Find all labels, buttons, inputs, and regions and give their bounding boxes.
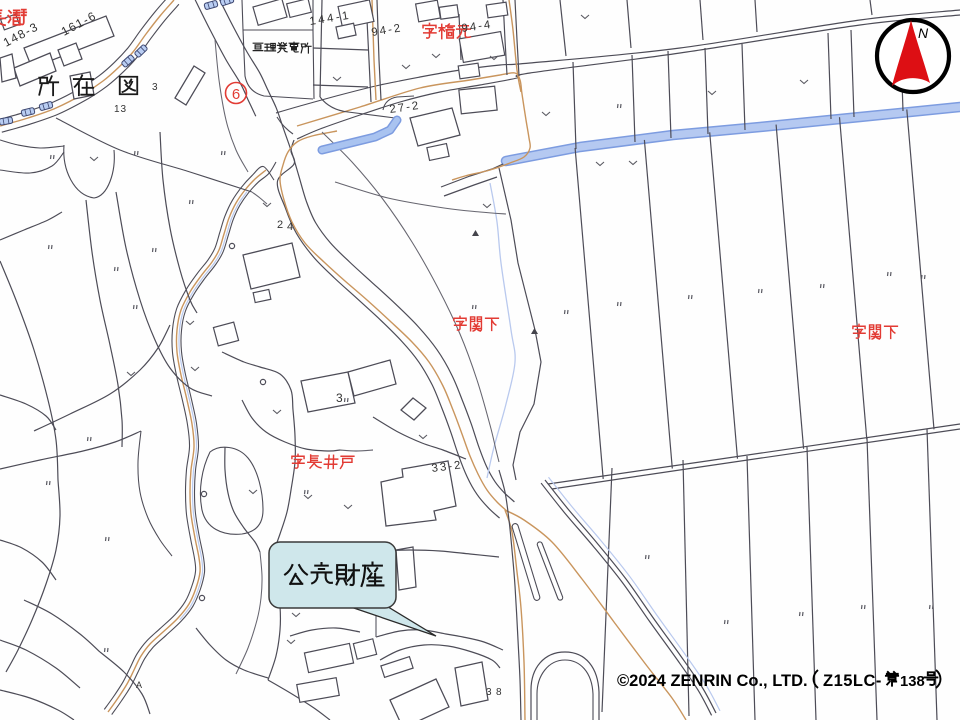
svg-text:8: 8 <box>496 687 502 698</box>
svg-text:A: A <box>136 680 142 690</box>
svg-text:3: 3 <box>152 82 158 93</box>
svg-text:6: 6 <box>232 86 240 103</box>
svg-text:2: 2 <box>277 219 283 231</box>
svg-text:3: 3 <box>486 687 492 698</box>
svg-text:©2024 ZENRIN Co., LTD.: ©2024 ZENRIN Co., LTD. <box>617 672 808 690</box>
svg-text:N: N <box>918 25 929 41</box>
svg-text:3: 3 <box>336 391 343 405</box>
svg-text:13: 13 <box>114 104 127 115</box>
svg-text:Z15LC-: Z15LC- <box>823 672 882 690</box>
svg-text:138: 138 <box>900 674 925 690</box>
svg-text:4: 4 <box>287 221 293 233</box>
